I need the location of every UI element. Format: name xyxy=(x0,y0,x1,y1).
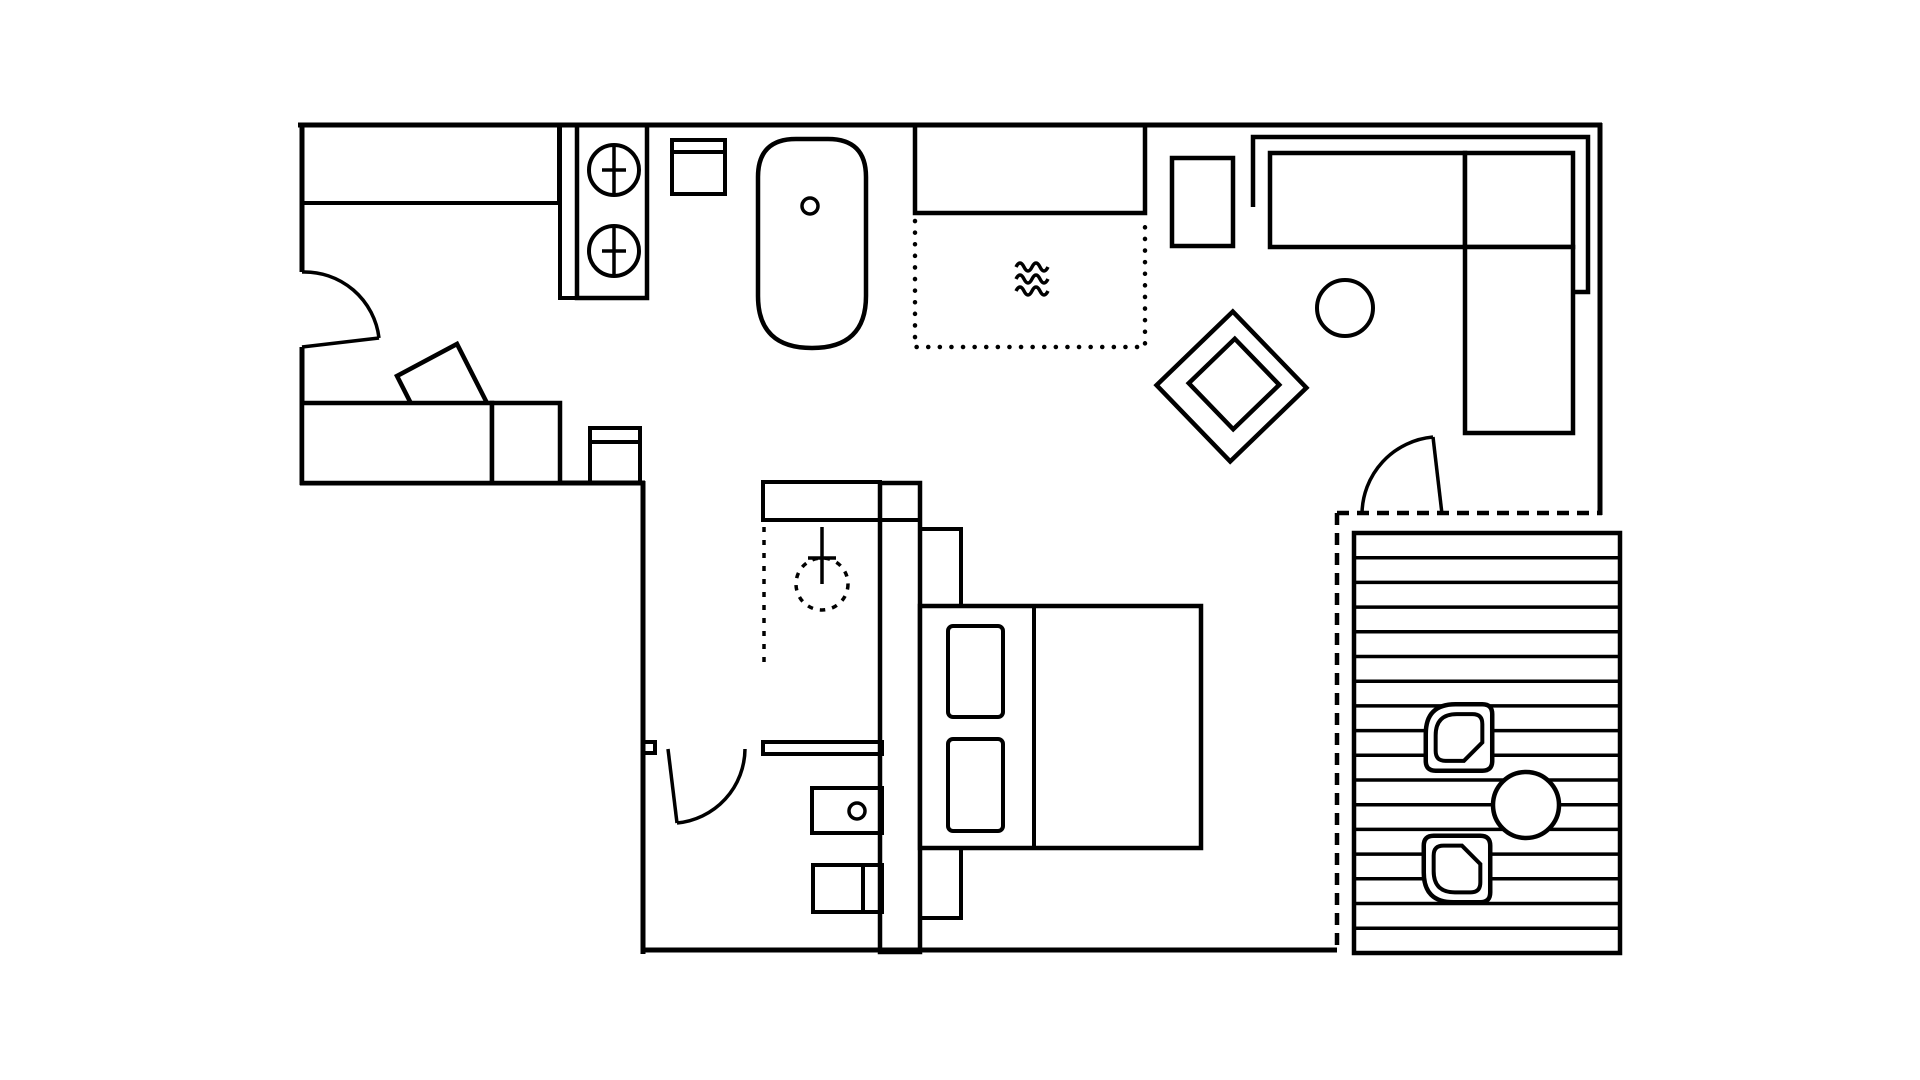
bathtub xyxy=(758,139,866,348)
sofa-seat-chaise xyxy=(1465,247,1573,433)
daybed-sofa xyxy=(302,403,492,483)
round-deck-table xyxy=(1493,772,1559,838)
double-bed xyxy=(920,606,1201,848)
deck xyxy=(1354,533,1620,953)
bath-area xyxy=(758,139,866,348)
sofa-seat-long xyxy=(1270,153,1465,247)
sofa-seat-corner xyxy=(1465,153,1573,247)
floor-plan-canvas xyxy=(0,0,1920,1080)
sofa-cushion xyxy=(492,403,560,483)
floor-plan-drawing xyxy=(0,0,1920,1080)
